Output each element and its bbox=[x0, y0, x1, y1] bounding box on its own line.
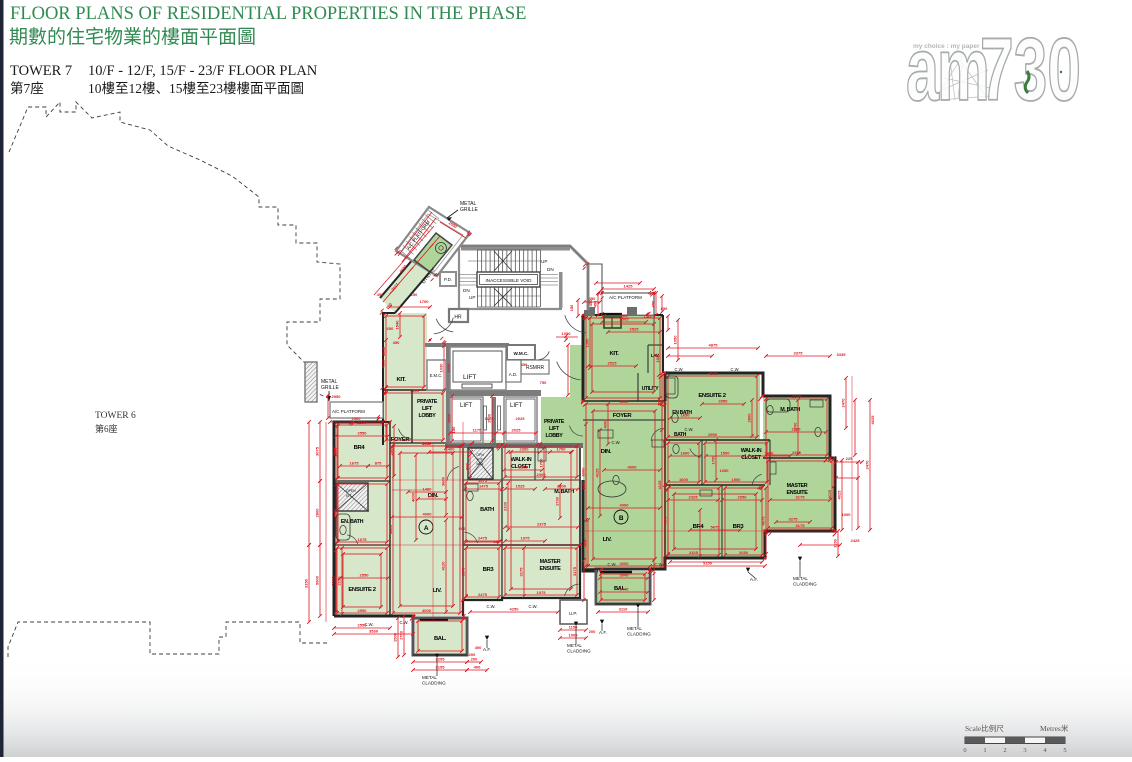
svg-text:3175: 3175 bbox=[796, 523, 806, 528]
svg-text:4025: 4025 bbox=[837, 490, 842, 500]
svg-text:4875: 4875 bbox=[709, 343, 719, 348]
svg-text:2375: 2375 bbox=[537, 522, 547, 527]
svg-text:875: 875 bbox=[375, 461, 382, 466]
svg-text:3049: 3049 bbox=[620, 573, 630, 578]
svg-text:2800: 2800 bbox=[333, 447, 338, 457]
svg-text:8000: 8000 bbox=[581, 467, 586, 477]
svg-text:5: 5 bbox=[1063, 747, 1066, 754]
svg-text:2325: 2325 bbox=[689, 550, 699, 555]
svg-text:C.W.: C.W. bbox=[486, 604, 495, 609]
svg-text:FOYER: FOYER bbox=[613, 413, 633, 419]
svg-text:450: 450 bbox=[589, 296, 596, 301]
svg-text:期數的住宅物業的樓面平面圖: 期數的住宅物業的樓面平面圖 bbox=[9, 26, 256, 48]
svg-text:LIFT: LIFT bbox=[460, 403, 473, 409]
svg-text:4000: 4000 bbox=[620, 399, 630, 404]
svg-text:3150: 3150 bbox=[304, 578, 309, 588]
svg-text:1975: 1975 bbox=[521, 536, 531, 541]
svg-text:INACCESSIBLE VOID: INACCESSIBLE VOID bbox=[486, 278, 533, 283]
svg-text:DN: DN bbox=[547, 267, 554, 272]
svg-text:400: 400 bbox=[474, 665, 481, 670]
svg-text:1525: 1525 bbox=[516, 484, 526, 489]
svg-text:第7座: 第7座 bbox=[10, 80, 44, 96]
svg-text:4335: 4335 bbox=[381, 359, 386, 369]
svg-text:10/F - 12/F, 15/F - 23/F FLOOR: 10/F - 12/F, 15/F - 23/F FLOOR PLAN bbox=[88, 63, 318, 79]
svg-text:DIN.: DIN. bbox=[601, 449, 612, 455]
svg-text:BR4: BR4 bbox=[354, 445, 366, 451]
svg-text:BR3: BR3 bbox=[483, 567, 495, 573]
svg-text:1475: 1475 bbox=[479, 484, 489, 489]
svg-text:450: 450 bbox=[377, 292, 384, 297]
svg-text:C.W.: C.W. bbox=[528, 604, 537, 609]
svg-text:TOWER 7: TOWER 7 bbox=[10, 63, 72, 79]
svg-text:4000: 4000 bbox=[628, 465, 638, 470]
svg-text:4025: 4025 bbox=[827, 489, 832, 499]
svg-text:1700: 1700 bbox=[539, 458, 544, 468]
svg-text:KIT: KIT bbox=[477, 458, 482, 462]
svg-text:LIV.: LIV. bbox=[603, 537, 613, 543]
svg-text:1540: 1540 bbox=[395, 320, 400, 330]
svg-text:3275: 3275 bbox=[789, 517, 799, 522]
svg-text:KIT.: KIT. bbox=[609, 351, 619, 357]
svg-text:第6座: 第6座 bbox=[95, 423, 118, 434]
svg-text:1675: 1675 bbox=[350, 461, 360, 466]
svg-text:4000: 4000 bbox=[411, 492, 416, 502]
svg-text:W.M.C.: W.M.C. bbox=[513, 351, 528, 356]
svg-text:3175: 3175 bbox=[572, 566, 577, 576]
svg-text:UP: UP bbox=[469, 295, 475, 300]
svg-text:A/C PLATFORM: A/C PLATFORM bbox=[332, 409, 365, 414]
svg-text:2325: 2325 bbox=[689, 495, 699, 500]
svg-text:1975: 1975 bbox=[537, 590, 547, 595]
svg-text:1050: 1050 bbox=[655, 353, 660, 363]
svg-text:5675: 5675 bbox=[711, 525, 721, 530]
svg-text:2440: 2440 bbox=[620, 587, 630, 592]
svg-text:A.F.: A.F. bbox=[599, 630, 607, 635]
svg-text:1450: 1450 bbox=[765, 451, 775, 456]
svg-text:1000: 1000 bbox=[842, 512, 852, 517]
svg-text:4075: 4075 bbox=[761, 516, 766, 526]
svg-text:2800: 2800 bbox=[747, 413, 752, 423]
svg-text:A/C PLATFORM: A/C PLATFORM bbox=[609, 295, 642, 300]
svg-text:4125: 4125 bbox=[595, 468, 600, 478]
svg-text:GRILLE: GRILLE bbox=[460, 207, 478, 213]
svg-text:2300: 2300 bbox=[519, 465, 529, 470]
svg-text:1425: 1425 bbox=[624, 284, 634, 289]
svg-text:10樓至12樓、15樓至23樓樓面平面圖: 10樓至12樓、15樓至23樓樓面平面圖 bbox=[88, 81, 304, 96]
svg-text:3075: 3075 bbox=[315, 446, 320, 456]
svg-text:5900: 5900 bbox=[315, 575, 320, 585]
svg-text:1350: 1350 bbox=[333, 508, 338, 518]
svg-text:3600: 3600 bbox=[388, 524, 393, 534]
svg-text:2550: 2550 bbox=[358, 608, 368, 613]
svg-text:FLOOR PLANS OF RESIDENTIAL PRO: FLOOR PLANS OF RESIDENTIAL PROPERTIES IN… bbox=[10, 4, 526, 24]
svg-text:C.W.: C.W. bbox=[674, 367, 683, 372]
svg-text:1650: 1650 bbox=[681, 413, 691, 418]
svg-text:1575: 1575 bbox=[494, 539, 504, 544]
svg-text:2300: 2300 bbox=[520, 447, 530, 452]
svg-text:1600: 1600 bbox=[679, 477, 689, 482]
svg-text:MASTER: MASTER bbox=[787, 483, 808, 489]
svg-text:1600: 1600 bbox=[681, 451, 691, 456]
svg-text:BR3: BR3 bbox=[733, 524, 745, 530]
svg-text:4000: 4000 bbox=[422, 608, 432, 613]
svg-text:150: 150 bbox=[569, 304, 574, 311]
svg-text:U.P.: U.P. bbox=[569, 611, 577, 616]
svg-text:1700: 1700 bbox=[399, 630, 404, 640]
svg-text:3175: 3175 bbox=[519, 567, 524, 577]
svg-text:1030: 1030 bbox=[446, 363, 451, 373]
svg-text:PRIVATE: PRIVATE bbox=[544, 419, 565, 425]
svg-text:1500: 1500 bbox=[732, 477, 742, 482]
svg-text:4025: 4025 bbox=[870, 415, 875, 425]
svg-text:CLADDING: CLADDING bbox=[793, 582, 817, 587]
svg-text:A: A bbox=[424, 525, 429, 532]
svg-text:1050: 1050 bbox=[657, 396, 662, 406]
svg-text:RSMRR: RSMRR bbox=[526, 365, 545, 371]
svg-text:E.M.C.: E.M.C. bbox=[430, 373, 443, 378]
svg-text:2: 2 bbox=[1003, 747, 1006, 754]
svg-text:2150: 2150 bbox=[337, 576, 342, 586]
svg-text:2475: 2475 bbox=[478, 536, 488, 541]
svg-text:2800: 2800 bbox=[315, 508, 320, 518]
svg-text:2025: 2025 bbox=[512, 428, 522, 433]
svg-text:BATH: BATH bbox=[480, 507, 494, 513]
svg-text:Metres米: Metres米 bbox=[1040, 723, 1069, 733]
svg-text:LOBBY: LOBBY bbox=[418, 413, 436, 419]
svg-text:HR: HR bbox=[454, 315, 462, 321]
svg-text:ENSUITE: ENSUITE bbox=[540, 566, 562, 572]
svg-text:1460: 1460 bbox=[644, 314, 654, 319]
svg-text:TOWER 6: TOWER 6 bbox=[95, 411, 136, 421]
svg-text:200: 200 bbox=[469, 652, 476, 657]
svg-text:4335: 4335 bbox=[381, 346, 386, 356]
svg-text:UP: UP bbox=[541, 259, 547, 264]
svg-text:4000: 4000 bbox=[620, 503, 630, 508]
svg-text:GRILLE: GRILLE bbox=[321, 385, 339, 391]
svg-text:2950: 2950 bbox=[708, 432, 718, 437]
svg-text:METAL: METAL bbox=[567, 643, 582, 648]
svg-text:650: 650 bbox=[387, 326, 394, 331]
svg-text:CLADDING: CLADDING bbox=[627, 632, 651, 637]
svg-text:1400: 1400 bbox=[410, 388, 420, 393]
svg-text:UTILITY: UTILITY bbox=[642, 386, 659, 392]
svg-text:C.W.: C.W. bbox=[730, 367, 739, 372]
svg-text:BAL.: BAL. bbox=[434, 636, 447, 642]
svg-text:3175: 3175 bbox=[796, 495, 806, 500]
svg-text:3850: 3850 bbox=[583, 538, 588, 548]
svg-text:2505: 2505 bbox=[620, 317, 630, 322]
svg-text:WALK-IN: WALK-IN bbox=[511, 457, 532, 463]
svg-text:CLADDING: CLADDING bbox=[422, 681, 446, 686]
svg-text:150: 150 bbox=[451, 426, 456, 433]
svg-text:LIV.: LIV. bbox=[433, 588, 443, 594]
svg-text:450: 450 bbox=[593, 300, 598, 307]
svg-text:650: 650 bbox=[651, 300, 656, 307]
svg-text:PRIVATE: PRIVATE bbox=[417, 399, 438, 405]
svg-text:3600: 3600 bbox=[441, 476, 446, 486]
svg-text:1000: 1000 bbox=[569, 633, 579, 638]
svg-text:C.W.: C.W. bbox=[611, 440, 620, 445]
svg-text:2550: 2550 bbox=[358, 623, 368, 628]
svg-text:Scale比例尺: Scale比例尺 bbox=[965, 723, 1004, 733]
svg-text:3530: 3530 bbox=[369, 629, 379, 634]
svg-text:2050: 2050 bbox=[739, 550, 749, 555]
svg-text:1475: 1475 bbox=[478, 478, 488, 483]
svg-text:BR4: BR4 bbox=[693, 524, 705, 530]
svg-text:1150: 1150 bbox=[833, 538, 838, 547]
svg-text:4875: 4875 bbox=[708, 371, 718, 376]
svg-text:4250: 4250 bbox=[510, 607, 520, 612]
svg-text:1675: 1675 bbox=[358, 537, 368, 542]
svg-text:2300: 2300 bbox=[537, 472, 547, 477]
svg-text:2950: 2950 bbox=[332, 394, 342, 399]
svg-text:DN: DN bbox=[463, 288, 470, 293]
svg-text:4120: 4120 bbox=[441, 561, 446, 571]
svg-text:2450: 2450 bbox=[423, 441, 433, 446]
svg-text:2550: 2550 bbox=[358, 431, 368, 436]
svg-text:1030: 1030 bbox=[439, 363, 444, 373]
svg-text:1700: 1700 bbox=[557, 447, 567, 452]
svg-text:2475: 2475 bbox=[478, 592, 488, 597]
svg-text:KIT.: KIT. bbox=[396, 377, 406, 383]
svg-text:LIFT: LIFT bbox=[510, 403, 523, 409]
svg-text:400: 400 bbox=[475, 645, 482, 650]
svg-text:0: 0 bbox=[963, 747, 966, 754]
svg-text:2525: 2525 bbox=[630, 327, 640, 332]
svg-text:EN. BATH: EN. BATH bbox=[341, 519, 364, 525]
svg-text:4000: 4000 bbox=[423, 512, 433, 517]
svg-text:OPEN: OPEN bbox=[346, 489, 356, 493]
svg-text:1175: 1175 bbox=[473, 428, 482, 433]
svg-text:1730: 1730 bbox=[555, 496, 560, 506]
svg-text:A.D.: A.D. bbox=[509, 372, 518, 377]
svg-text:C.W.: C.W. bbox=[684, 427, 693, 432]
svg-text:1700: 1700 bbox=[420, 299, 430, 304]
svg-text:450: 450 bbox=[393, 340, 400, 345]
svg-text:WALK-IN: WALK-IN bbox=[741, 448, 762, 454]
svg-text:150: 150 bbox=[411, 292, 418, 297]
svg-text:1150: 1150 bbox=[569, 625, 578, 630]
svg-text:730: 730 bbox=[980, 20, 1081, 119]
svg-text:1050: 1050 bbox=[673, 335, 678, 345]
svg-text:2300: 2300 bbox=[792, 450, 802, 455]
svg-text:LIFT: LIFT bbox=[422, 406, 433, 412]
svg-text:LOBBY: LOBBY bbox=[545, 433, 563, 439]
svg-text:WCL: WCL bbox=[476, 462, 484, 466]
svg-text:2470: 2470 bbox=[865, 460, 870, 470]
svg-text:MASTER: MASTER bbox=[540, 559, 561, 565]
svg-text:3375: 3375 bbox=[794, 351, 804, 356]
svg-text:200: 200 bbox=[471, 657, 478, 662]
svg-text:4000: 4000 bbox=[603, 419, 608, 429]
svg-text:1050: 1050 bbox=[562, 331, 572, 336]
svg-text:2425: 2425 bbox=[851, 538, 861, 543]
svg-text:1175: 1175 bbox=[485, 416, 494, 421]
svg-text:3110: 3110 bbox=[619, 607, 628, 612]
svg-text:METAL: METAL bbox=[793, 576, 808, 581]
svg-text:1350: 1350 bbox=[585, 338, 590, 348]
svg-text:1700: 1700 bbox=[793, 422, 798, 432]
svg-text:200: 200 bbox=[589, 629, 596, 634]
svg-text:2100: 2100 bbox=[503, 501, 508, 511]
svg-text:1400: 1400 bbox=[423, 487, 433, 492]
svg-text:1500: 1500 bbox=[447, 413, 452, 423]
svg-text:900: 900 bbox=[459, 526, 466, 531]
svg-text:2950: 2950 bbox=[719, 399, 729, 404]
svg-text:3335: 3335 bbox=[837, 352, 847, 357]
svg-text:KIT: KIT bbox=[346, 494, 351, 498]
svg-text:LIFT: LIFT bbox=[463, 374, 476, 381]
svg-text:2550: 2550 bbox=[360, 573, 370, 578]
svg-text:CLADDING: CLADDING bbox=[567, 649, 591, 654]
svg-text:2400: 2400 bbox=[446, 447, 456, 452]
svg-text:METAL: METAL bbox=[422, 675, 437, 680]
svg-text:4125: 4125 bbox=[657, 480, 662, 490]
svg-text:2560: 2560 bbox=[352, 416, 362, 421]
svg-text:1500: 1500 bbox=[721, 451, 731, 456]
svg-text:2470: 2470 bbox=[841, 398, 846, 408]
svg-text:METAL: METAL bbox=[627, 626, 642, 631]
svg-text:P.D.: P.D. bbox=[444, 277, 452, 282]
svg-text:B: B bbox=[619, 515, 624, 522]
svg-text:LIFT: LIFT bbox=[549, 426, 560, 432]
svg-text:8000: 8000 bbox=[581, 480, 586, 490]
svg-text:2100: 2100 bbox=[331, 576, 336, 586]
svg-text:ENSUITE 2: ENSUITE 2 bbox=[348, 587, 376, 593]
svg-text:3: 3 bbox=[1023, 747, 1026, 754]
svg-text:2025: 2025 bbox=[516, 416, 526, 421]
svg-text:1475: 1475 bbox=[428, 494, 438, 499]
svg-text:3375: 3375 bbox=[792, 394, 802, 399]
svg-text:OPN: OPN bbox=[476, 453, 484, 457]
svg-text:2050: 2050 bbox=[738, 495, 748, 500]
svg-text:750: 750 bbox=[540, 380, 547, 385]
svg-text:900: 900 bbox=[465, 462, 470, 469]
svg-text:1650: 1650 bbox=[720, 468, 730, 473]
svg-text:A.F.: A.F. bbox=[750, 577, 758, 582]
svg-text:1: 1 bbox=[983, 747, 986, 754]
svg-text:am: am bbox=[906, 20, 988, 120]
svg-text:2525: 2525 bbox=[608, 361, 618, 366]
svg-text:5150: 5150 bbox=[703, 561, 713, 566]
svg-text:4000: 4000 bbox=[620, 561, 630, 566]
svg-text:1700: 1700 bbox=[711, 455, 716, 465]
svg-text:450: 450 bbox=[521, 362, 528, 367]
